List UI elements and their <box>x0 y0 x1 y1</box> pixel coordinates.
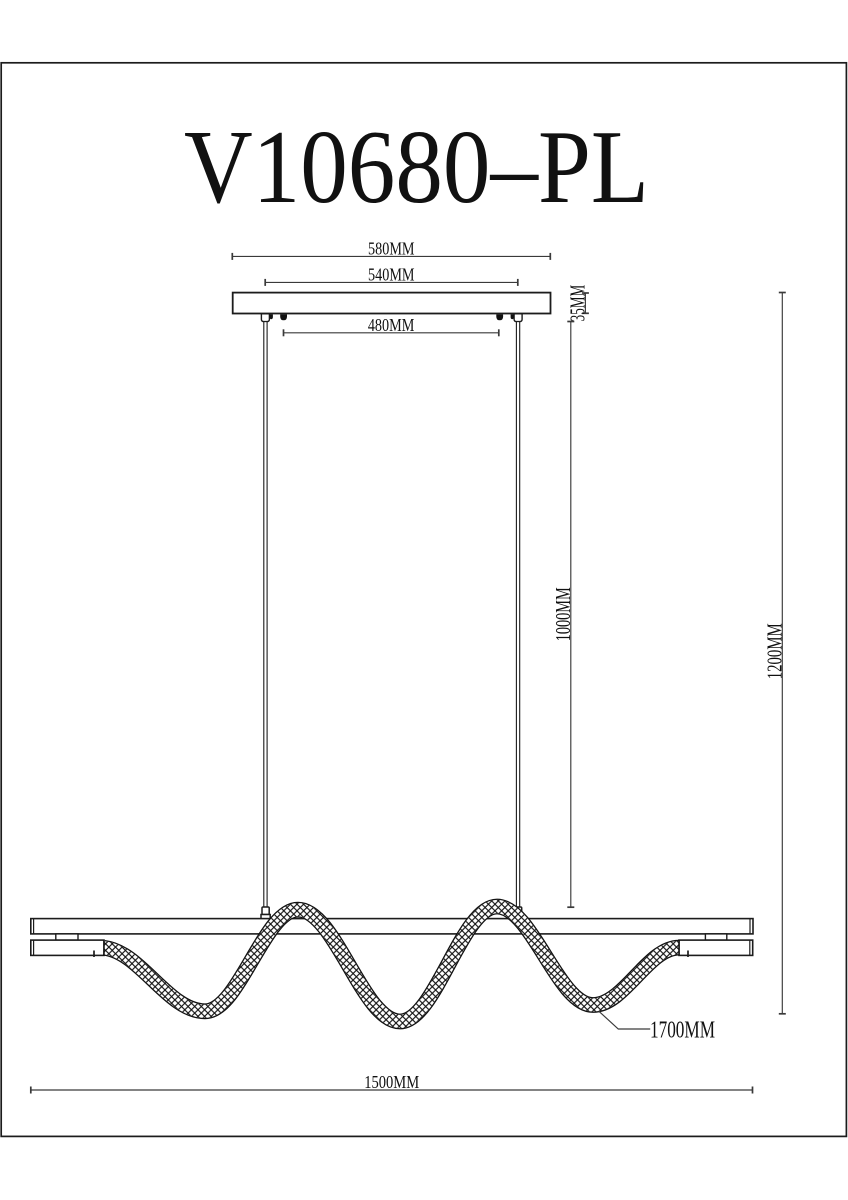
svg-text:580MM: 580MM <box>368 238 415 258</box>
svg-text:1500MM: 1500MM <box>364 1072 419 1092</box>
svg-text:35MM: 35MM <box>566 285 590 322</box>
svg-text:540MM: 540MM <box>368 265 415 285</box>
svg-text:1700MM: 1700MM <box>650 1018 715 1044</box>
svg-text:V10680–PL: V10680–PL <box>184 108 649 225</box>
svg-text:1200MM: 1200MM <box>763 623 787 679</box>
svg-text:1000MM: 1000MM <box>551 587 575 641</box>
svg-text:480MM: 480MM <box>368 315 415 335</box>
